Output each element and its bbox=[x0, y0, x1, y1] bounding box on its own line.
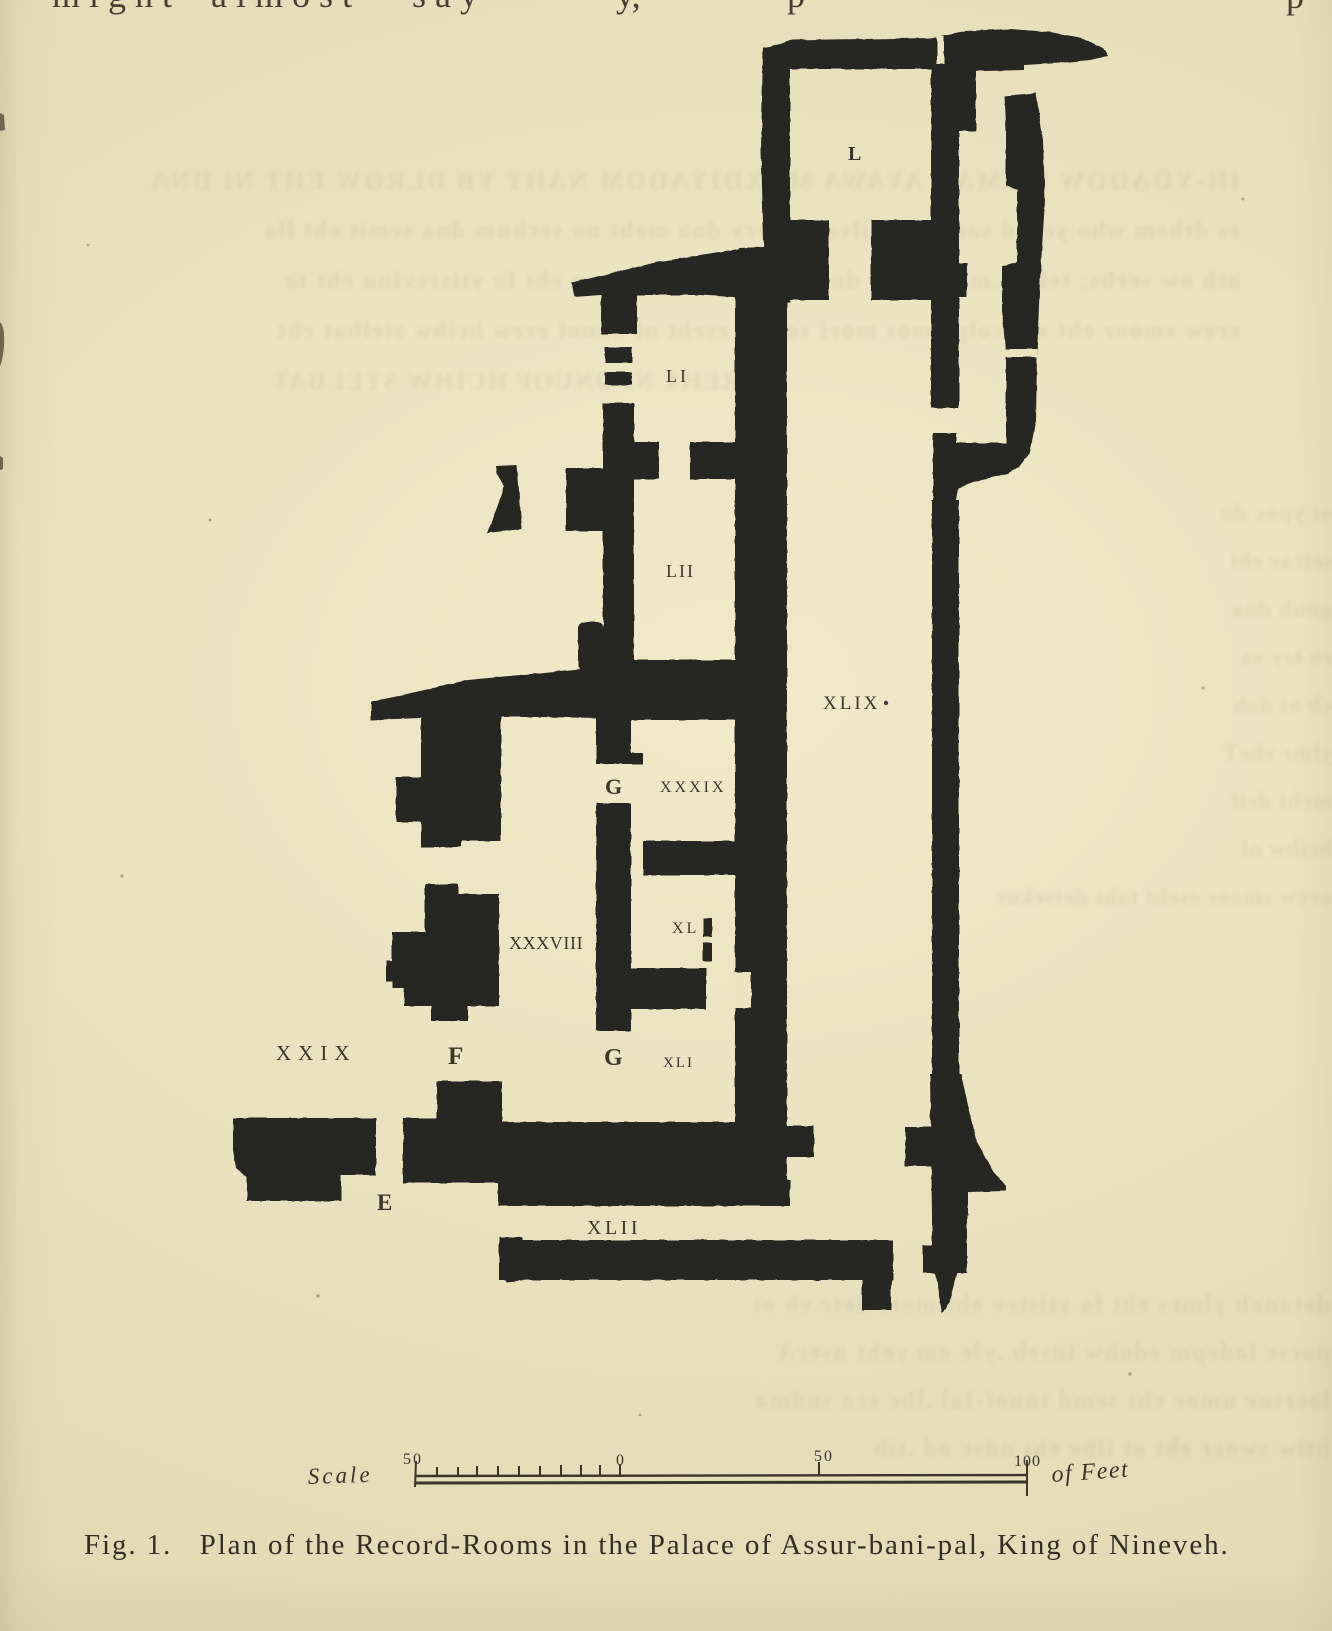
svg-text:Scale: Scale bbox=[307, 1462, 373, 1489]
svg-text:XXIX: XXIX bbox=[276, 1041, 357, 1065]
svg-text:LI: LI bbox=[666, 366, 689, 386]
svg-text:XLI: XLI bbox=[663, 1055, 694, 1071]
svg-text:XLII: XLII bbox=[587, 1217, 641, 1239]
svg-text:0: 0 bbox=[616, 1452, 624, 1469]
svg-text:XLIX: XLIX bbox=[823, 693, 880, 714]
svg-text:F: F bbox=[448, 1043, 463, 1070]
svg-text:G: G bbox=[604, 1045, 623, 1071]
svg-text:XL: XL bbox=[672, 920, 699, 937]
svg-text:L: L bbox=[848, 143, 861, 165]
svg-text:G: G bbox=[605, 774, 622, 799]
svg-text:50: 50 bbox=[403, 1451, 423, 1468]
svg-text:LII: LII bbox=[666, 561, 695, 581]
svg-text:of Feet: of Feet bbox=[1051, 1457, 1130, 1488]
svg-text:XXXIX: XXXIX bbox=[660, 779, 727, 796]
svg-text:100: 100 bbox=[1014, 1453, 1041, 1470]
svg-text:E: E bbox=[377, 1190, 392, 1215]
svg-text:50: 50 bbox=[814, 1448, 834, 1465]
svg-text:XXXVIII: XXXVIII bbox=[509, 933, 583, 953]
